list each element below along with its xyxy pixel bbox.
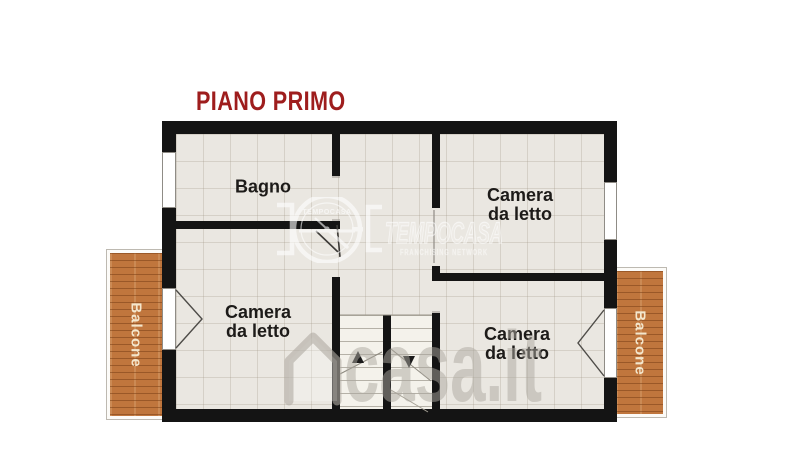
balcony-right-label: Balcone xyxy=(631,310,648,375)
door-swing-right-balcony xyxy=(578,310,604,376)
balcony-right-floor: Balcone xyxy=(616,271,663,414)
plan-symbols xyxy=(162,121,617,422)
page-title: PIANO PRIMO xyxy=(196,86,346,117)
floorplan-page: PIANO PRIMO Balcone Balcone xyxy=(0,0,800,458)
room-label-bedroom-bottom-right: Camera da letto xyxy=(478,325,556,363)
balcony-left: Balcone xyxy=(106,249,166,420)
door-leaf-bedroom-bottom-left xyxy=(316,225,340,257)
stairs-cut-line xyxy=(391,390,428,412)
balcony-right: Balcone xyxy=(612,267,667,418)
room-label-bedroom-top-right: Camera da letto xyxy=(481,186,559,224)
room-label-bathroom: Bagno xyxy=(235,178,291,197)
balcony-left-label: Balcone xyxy=(128,302,145,367)
stairs-cut-line xyxy=(391,349,431,381)
door-swing-left-balcony xyxy=(176,290,202,348)
stairs-up-arrow-icon xyxy=(352,351,364,363)
balcony-left-floor: Balcone xyxy=(110,253,162,416)
floorplan: Bagno Camera da letto Camera da letto Ca… xyxy=(162,121,617,422)
room-label-bedroom-bottom-left: Camera da letto xyxy=(219,303,297,341)
